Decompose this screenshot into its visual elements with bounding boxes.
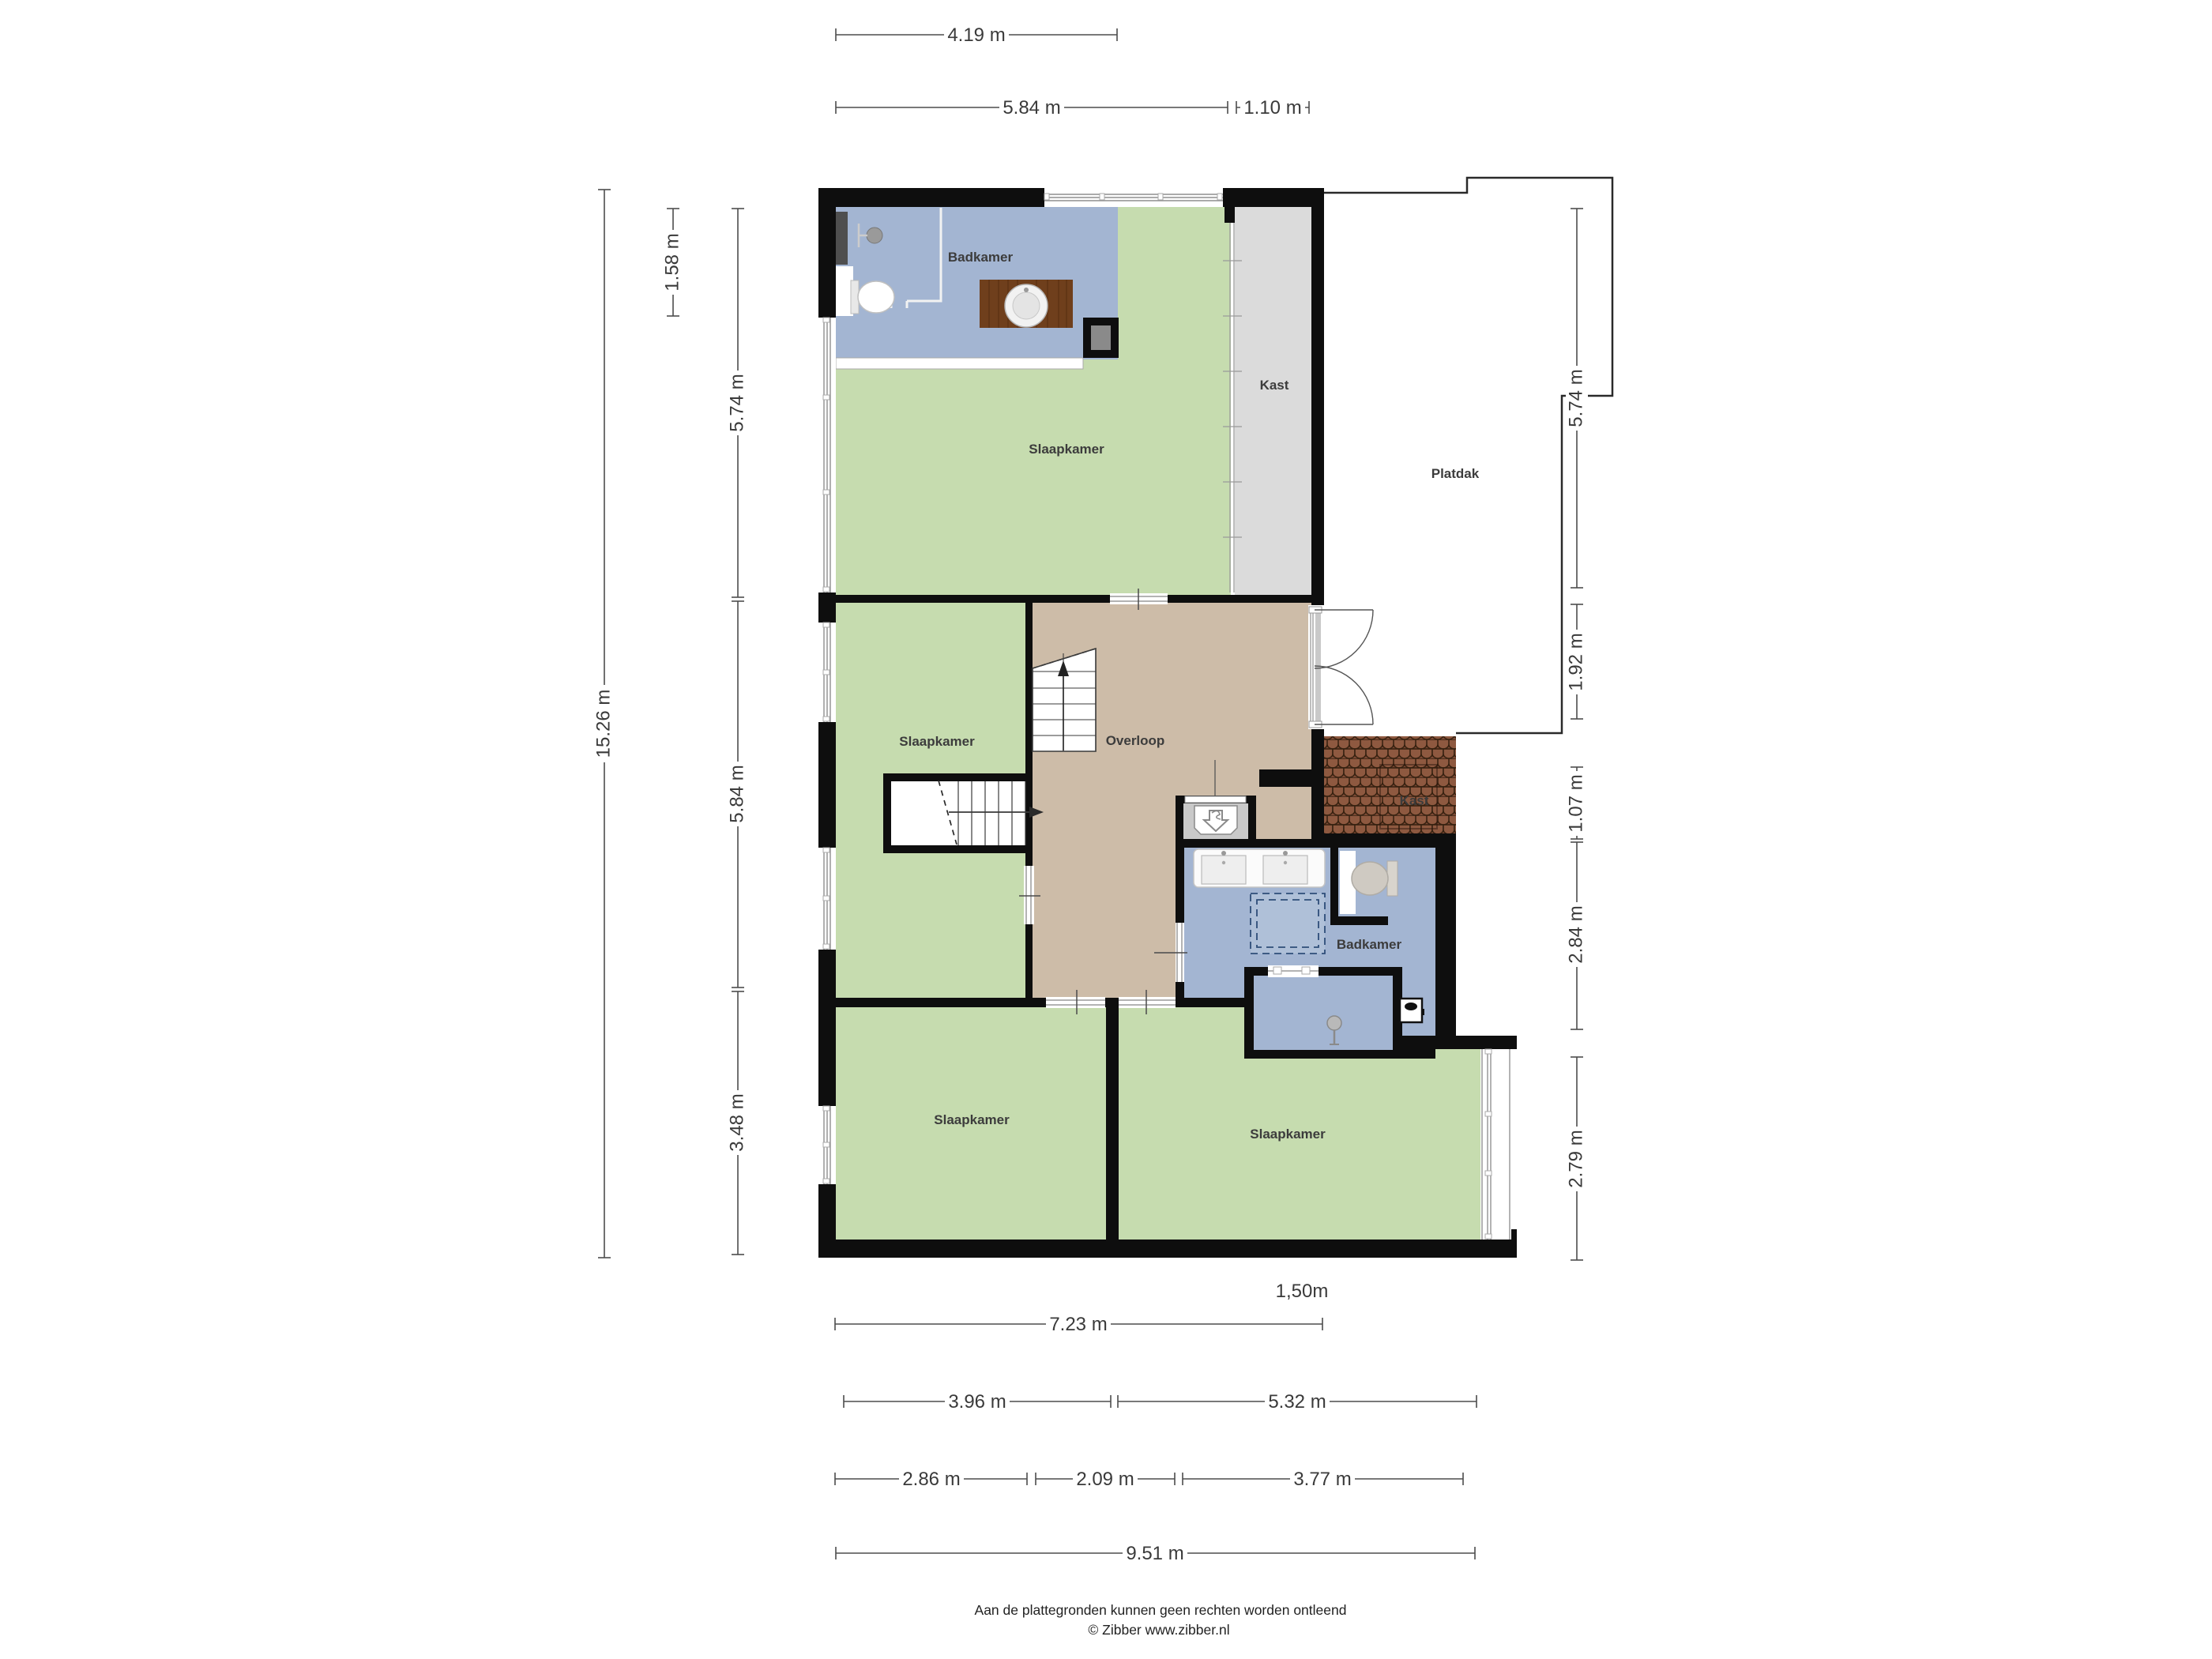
- svg-text:Platdak: Platdak: [1431, 466, 1480, 481]
- svg-text:Slaapkamer: Slaapkamer: [1029, 442, 1104, 457]
- svg-text:1.10 m: 1.10 m: [1243, 97, 1301, 118]
- svg-text:2.86 m: 2.86 m: [902, 1469, 960, 1490]
- svg-text:2.09 m: 2.09 m: [1076, 1469, 1134, 1490]
- svg-text:2.79 m: 2.79 m: [1565, 1130, 1586, 1187]
- svg-text:3.77 m: 3.77 m: [1293, 1469, 1351, 1490]
- svg-text:1.92 m: 1.92 m: [1565, 633, 1586, 690]
- svg-text:© Zibber www.zibber.nl: © Zibber www.zibber.nl: [1088, 1622, 1229, 1638]
- svg-text:Kast: Kast: [1260, 378, 1289, 393]
- svg-text:2.84 m: 2.84 m: [1565, 905, 1586, 963]
- svg-text:Badkamer: Badkamer: [948, 250, 1014, 265]
- svg-text:4.19 m: 4.19 m: [947, 24, 1005, 46]
- svg-text:5.32 m: 5.32 m: [1268, 1391, 1326, 1413]
- svg-text:15.26 m: 15.26 m: [592, 690, 614, 758]
- svg-text:Slaapkamer: Slaapkamer: [1250, 1127, 1326, 1142]
- svg-text:Overloop: Overloop: [1106, 733, 1165, 748]
- svg-text:3.48 m: 3.48 m: [726, 1093, 747, 1151]
- svg-text:5.84 m: 5.84 m: [1003, 97, 1060, 118]
- svg-text:1,50m: 1,50m: [1276, 1281, 1329, 1302]
- svg-text:7.23 m: 7.23 m: [1049, 1314, 1107, 1335]
- svg-text:9.51 m: 9.51 m: [1126, 1543, 1183, 1564]
- svg-text:1.58 m: 1.58 m: [661, 233, 683, 291]
- svg-text:Slaapkamer: Slaapkamer: [934, 1112, 1010, 1127]
- svg-text:5.74 m: 5.74 m: [1565, 369, 1586, 427]
- svg-text:3.96 m: 3.96 m: [948, 1391, 1006, 1413]
- svg-text:Aan de plattegronden kunnen ge: Aan de plattegronden kunnen geen rechten…: [975, 1602, 1347, 1618]
- svg-text:Slaapkamer: Slaapkamer: [899, 734, 975, 749]
- svg-text:5.74 m: 5.74 m: [726, 374, 747, 431]
- svg-text:1.07 m: 1.07 m: [1565, 774, 1586, 832]
- svg-text:Kast: Kast: [1400, 793, 1429, 808]
- svg-text:5.84 m: 5.84 m: [726, 765, 747, 822]
- svg-text:Badkamer: Badkamer: [1337, 937, 1402, 952]
